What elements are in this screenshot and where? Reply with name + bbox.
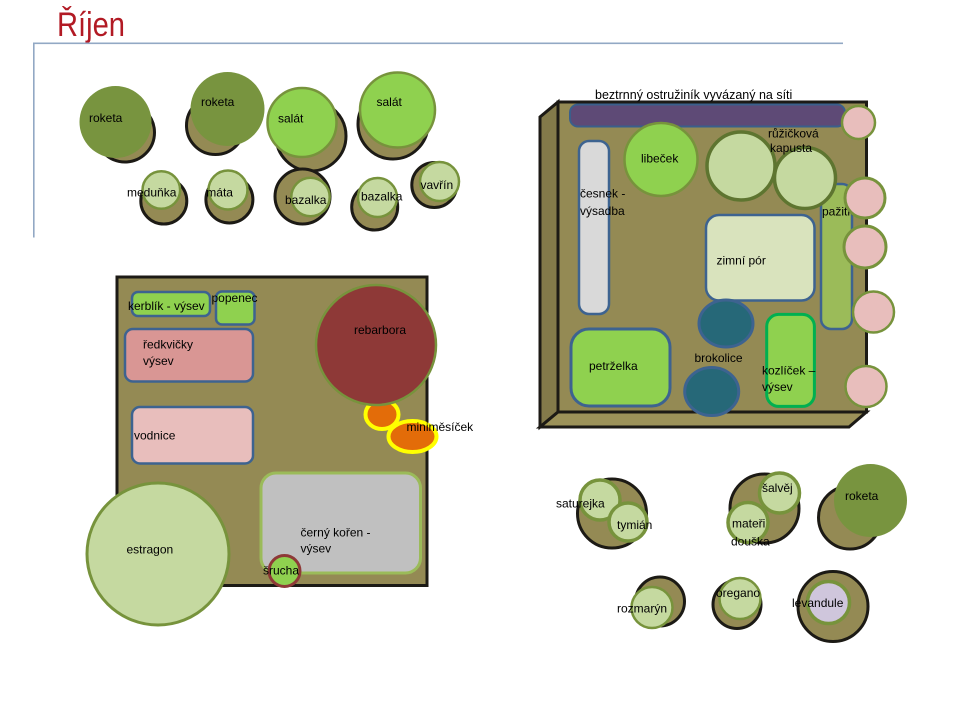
- svg-text:černý kořen -: černý kořen -: [301, 526, 371, 540]
- svg-text:rebarbora: rebarbora: [354, 323, 406, 337]
- svg-text:oregano: oregano: [716, 586, 760, 600]
- svg-text:roketa: roketa: [845, 489, 879, 503]
- svg-text:vodnice: vodnice: [134, 429, 176, 443]
- svg-text:bazalka: bazalka: [361, 190, 403, 204]
- svg-text:saturejka: saturejka: [556, 497, 605, 511]
- svg-text:česnek -: česnek -: [580, 187, 625, 201]
- svg-text:rozmarýn: rozmarýn: [617, 602, 667, 616]
- svg-text:výsev: výsev: [301, 542, 332, 556]
- svg-text:mateři: mateři: [732, 517, 765, 531]
- svg-text:bazalka: bazalka: [285, 193, 327, 207]
- svg-text:brokolice: brokolice: [695, 351, 743, 365]
- svg-text:salát: salát: [278, 112, 304, 126]
- svg-text:estragon: estragon: [127, 543, 174, 557]
- svg-text:výsadba: výsadba: [580, 204, 625, 218]
- svg-text:výsev: výsev: [762, 380, 793, 394]
- svg-text:levandule: levandule: [792, 596, 844, 610]
- svg-text:beztrnný ostružiník vyvázaný n: beztrnný ostružiník vyvázaný na síti: [595, 88, 792, 102]
- svg-text:roketa: roketa: [201, 95, 235, 109]
- svg-text:douška: douška: [731, 535, 770, 549]
- svg-text:meduňka: meduňka: [127, 186, 177, 200]
- svg-text:výsev: výsev: [143, 354, 174, 368]
- svg-text:tymián: tymián: [617, 518, 652, 532]
- svg-text:máta: máta: [206, 186, 233, 200]
- svg-text:růžičková: růžičková: [768, 127, 819, 141]
- svg-text:popenec: popenec: [212, 291, 258, 305]
- svg-text:Říjen: Říjen: [57, 6, 125, 44]
- svg-text:kapusta: kapusta: [770, 141, 812, 155]
- svg-text:salát: salát: [377, 95, 403, 109]
- svg-text:roketa: roketa: [89, 111, 123, 125]
- svg-text:vavřín: vavřín: [421, 178, 454, 192]
- svg-text:šrucha: šrucha: [263, 564, 299, 578]
- svg-text:kerblík - výsev: kerblík - výsev: [128, 299, 205, 313]
- svg-text:šalvěj: šalvěj: [762, 481, 793, 495]
- svg-text:petrželka: petrželka: [589, 359, 638, 373]
- svg-text:miniměsíček: miniměsíček: [407, 420, 475, 434]
- svg-text:libeček: libeček: [641, 152, 679, 166]
- svg-text:ředkvičky: ředkvičky: [143, 338, 193, 352]
- svg-text:kozlíček –: kozlíček –: [762, 364, 816, 378]
- svg-text:zimní pór: zimní pór: [717, 254, 766, 268]
